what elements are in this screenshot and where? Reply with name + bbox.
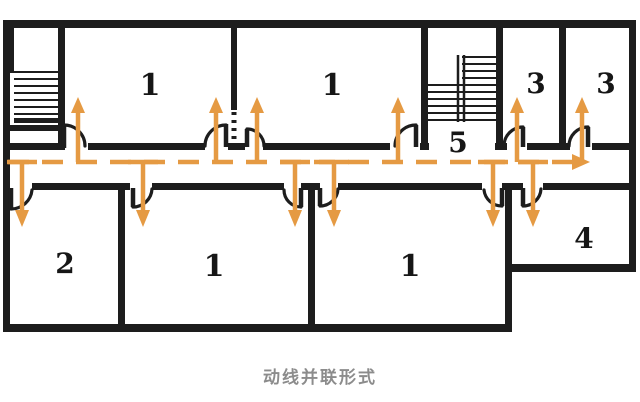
staircase-5 bbox=[428, 55, 496, 122]
room-label-1-lower-middle: 1 bbox=[204, 249, 225, 284]
stairwell-5-left-wall bbox=[421, 22, 428, 143]
floor-plan-canvas: 1 1 5 3 3 2 1 1 4 动线并联形式 bbox=[0, 0, 640, 402]
room-4-left-wall bbox=[505, 188, 512, 324]
room-label-3-left: 3 bbox=[526, 67, 545, 100]
diagram-caption: 动线并联形式 bbox=[263, 367, 377, 387]
stairwell-5-right-wall bbox=[496, 22, 503, 143]
room-label-1-lower-right: 1 bbox=[400, 249, 421, 284]
left-outer-wall bbox=[3, 20, 10, 332]
room-label-4: 4 bbox=[574, 222, 593, 255]
staircase-top-left bbox=[3, 23, 63, 131]
upper-rooms-divider bbox=[231, 22, 237, 110]
rooms-3-divider bbox=[559, 22, 566, 143]
door-arc bbox=[569, 127, 588, 146]
flow-arrow-down bbox=[15, 162, 540, 227]
room-4-bottom-wall bbox=[505, 264, 636, 272]
room-label-5: 5 bbox=[448, 126, 467, 159]
floor-plan-diagram: 1 1 5 3 3 2 1 1 4 动线并联形式 bbox=[0, 0, 640, 402]
room-2-right-wall bbox=[118, 188, 125, 324]
corridor-top-wall bbox=[3, 143, 636, 150]
room-label-2: 2 bbox=[55, 247, 74, 280]
lower-rooms-divider bbox=[308, 188, 315, 324]
partition-walls bbox=[58, 22, 566, 324]
room-label-1-upper-left: 1 bbox=[140, 68, 161, 103]
bottom-outer-wall bbox=[3, 324, 512, 332]
door-arc bbox=[284, 190, 301, 207]
room-label-3-right: 3 bbox=[596, 67, 615, 100]
room-label-1-upper-right: 1 bbox=[322, 68, 343, 103]
door-arc bbox=[64, 125, 85, 146]
top-outer-wall bbox=[3, 20, 636, 28]
